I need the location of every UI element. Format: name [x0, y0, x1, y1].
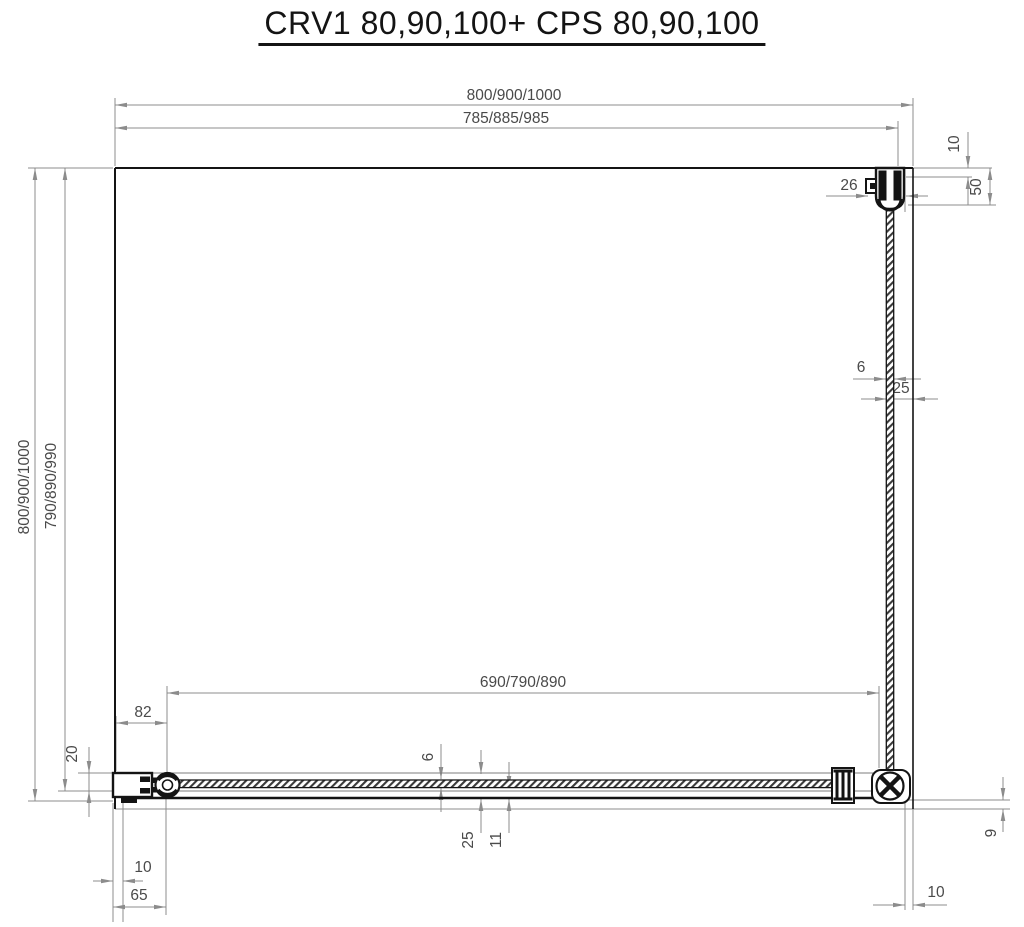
dim-threshold-height: 9: [983, 829, 1000, 838]
dim-right-wall-profile-width: 10: [927, 884, 945, 901]
dim-door-glass-width: 690/790/890: [480, 674, 567, 691]
door-hinge: [156, 773, 180, 797]
dim-bracket-length: 50: [968, 178, 985, 196]
door-glass-panel: [178, 780, 832, 788]
dim-wall-to-glass-gap: 10: [946, 135, 963, 153]
dim-door-rail-height: 11: [488, 832, 505, 848]
door-edge-clamp: [832, 768, 854, 803]
side-glass-panel: [886, 195, 893, 778]
dim-door-glass-thickness: 6: [420, 753, 437, 762]
dim-left-inner-depth: 790/890/990: [43, 443, 60, 530]
enclosure-plan: [113, 168, 913, 809]
dim-top-outer-width: 800/900/1000: [467, 87, 562, 104]
dim-side-glass-thickness: 6: [857, 359, 866, 376]
dim-hinge-offset: 82: [134, 704, 151, 721]
technical-drawing-canvas: 800/900/1000 785/885/985 800/900/1000 79…: [0, 0, 1024, 927]
dim-hinge-center-distance: 65: [130, 887, 147, 904]
dim-bracket-width: 26: [840, 177, 857, 194]
dim-top-glass-width: 785/885/985: [463, 110, 549, 127]
dim-wall-profile-height: 20: [64, 745, 81, 763]
dim-side-glass-to-wall: 25: [892, 380, 909, 397]
wall-bracket-top: [866, 168, 904, 210]
dim-left-outer-depth: 800/900/1000: [16, 439, 33, 534]
dim-door-profile-height: 25: [460, 831, 477, 848]
corner-pivot: [872, 770, 910, 803]
dim-left-wall-profile-width: 10: [134, 859, 152, 876]
wall-outline: [115, 168, 913, 809]
